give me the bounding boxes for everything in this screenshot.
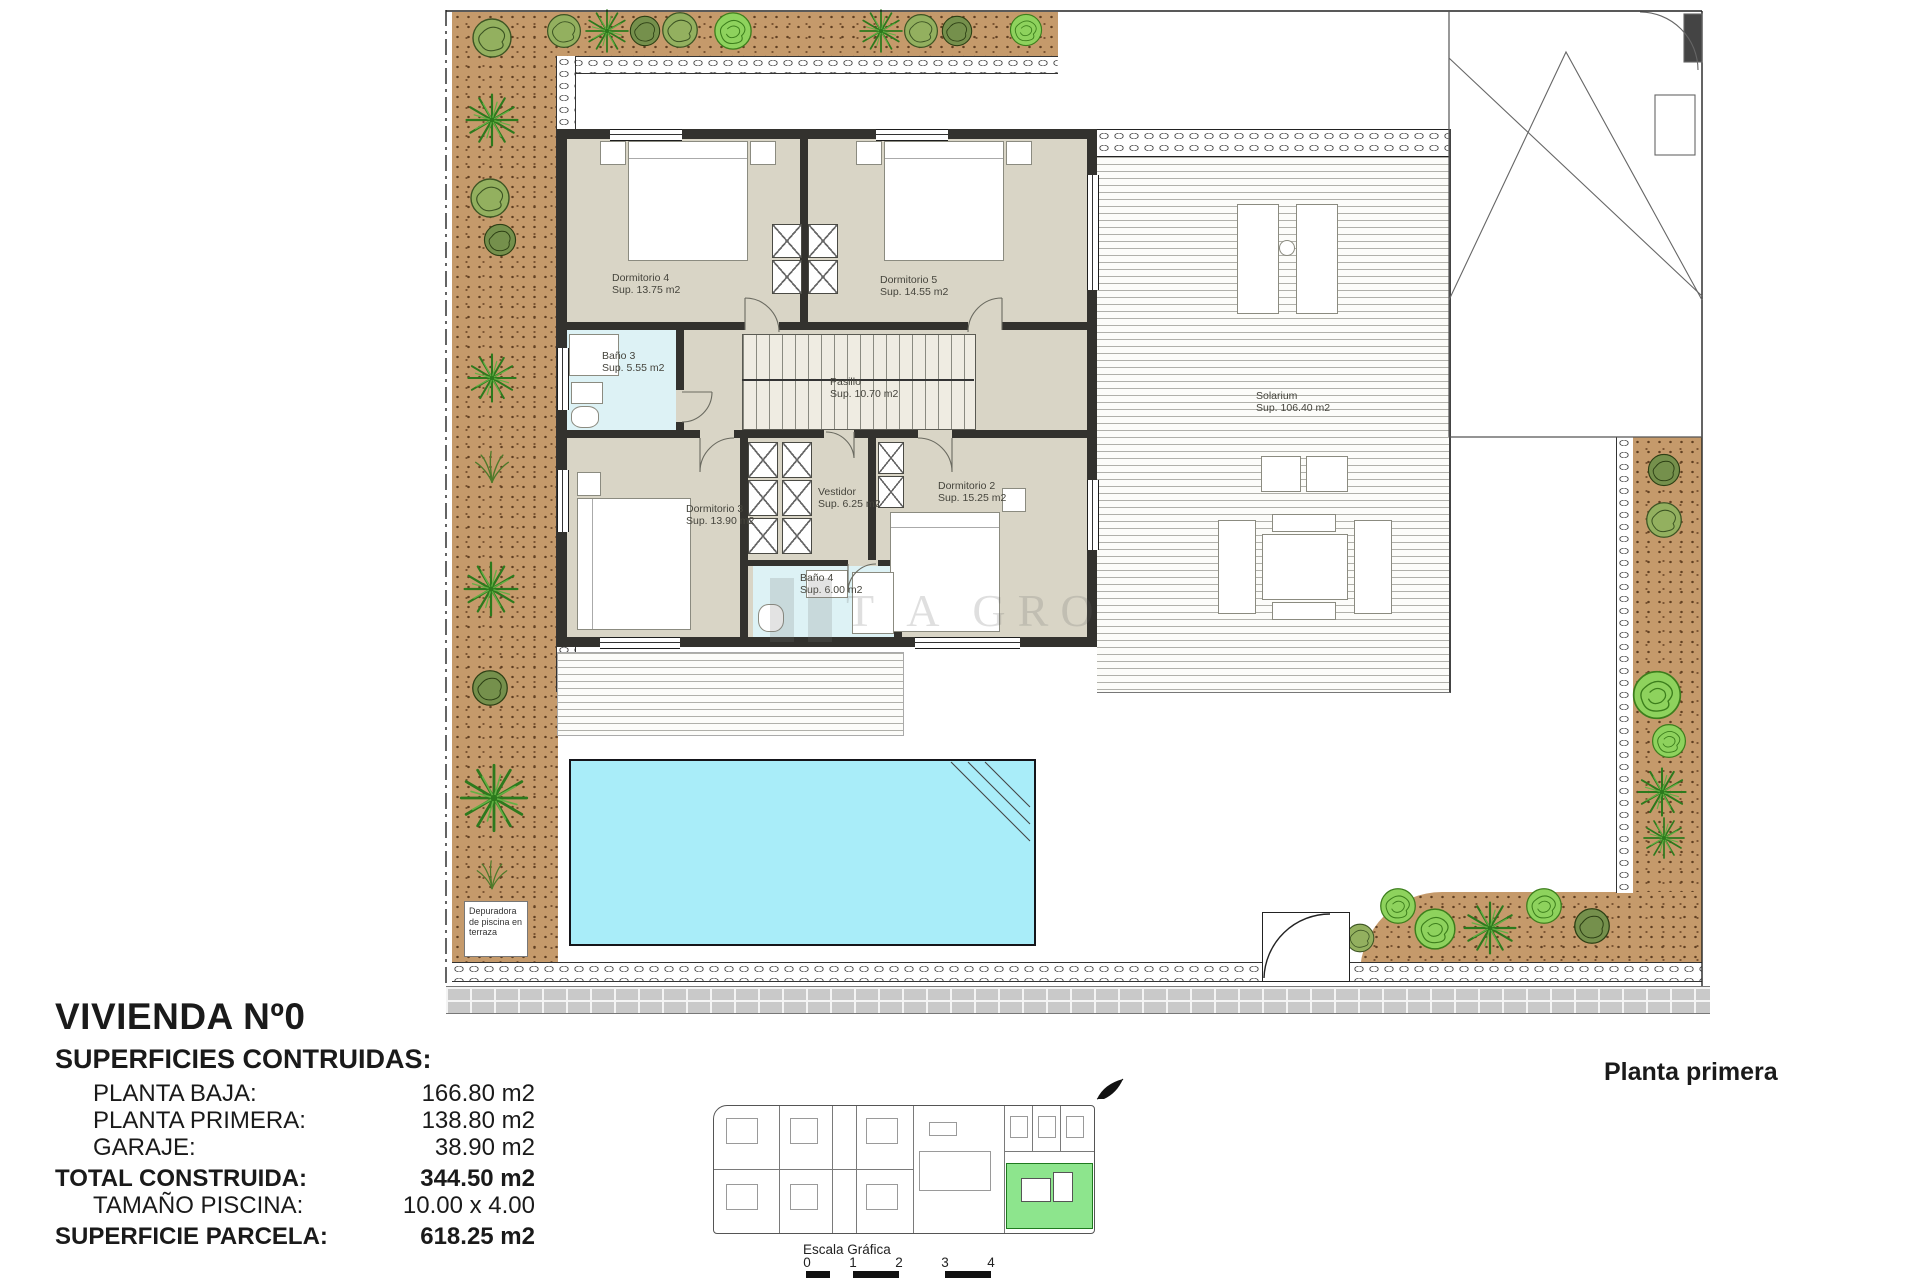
room-label-dormitorio-4: Dormitorio 4 Sup. 13.75 m2 (612, 272, 680, 296)
row-label: GARAJE: (55, 1134, 365, 1162)
room-area: Sup. 6.25 m2 (818, 498, 880, 510)
mini-unit-detail (1066, 1116, 1084, 1138)
scale-tick: 3 (939, 1255, 951, 1270)
bed (884, 141, 1004, 261)
window (610, 129, 682, 141)
wardrobe-icon (772, 224, 802, 258)
watermark: T A GRO (770, 578, 1106, 642)
mini-unit-detail (790, 1118, 818, 1144)
room-label-solarium: Solarium Sup. 106.40 m2 (1256, 390, 1330, 414)
wardrobe-icon (878, 442, 904, 474)
nightstand (750, 141, 776, 165)
garden-strip-right (1632, 437, 1702, 907)
surfaces-row: PLANTA BAJA: 166.80 m2 (55, 1080, 535, 1107)
scale-segment (853, 1271, 899, 1278)
surfaces-row: GARAJE: 38.90 m2 (55, 1134, 535, 1161)
note-line: de piscina (469, 917, 510, 927)
mini-unit-detail (790, 1184, 818, 1210)
mini-unit-detail (1021, 1178, 1051, 1202)
wall (557, 322, 1097, 330)
window (876, 129, 948, 141)
room-area: Sup. 10.70 m2 (830, 388, 898, 400)
sidewalk-band (446, 986, 1710, 1014)
scale-tick: 1 (847, 1255, 859, 1270)
window (600, 637, 680, 649)
nightstand (1006, 141, 1032, 165)
pool-equipment-note: Depuradora de piscina en terraza (464, 901, 528, 957)
room-name: Dormitorio 5 (880, 274, 948, 286)
sofa-module (1354, 520, 1392, 614)
row-value: 618.25 m2 (365, 1223, 535, 1251)
room-label-dormitorio-3: Dormitorio 3 Sup. 13.90 m2 (686, 503, 754, 527)
sliding-door (1087, 175, 1099, 290)
low-table (1261, 456, 1301, 492)
unit-divider (913, 1106, 914, 1233)
mini-unit-detail (1038, 1116, 1056, 1138)
scale-bar: Escala Gráfica 0 1 2 3 4 (803, 1242, 1043, 1280)
scale-tick: 0 (801, 1255, 813, 1270)
watermark-logo-bar (770, 578, 794, 642)
wall (740, 438, 748, 637)
sun-lounger (1296, 204, 1338, 314)
room-area: Sup. 5.55 m2 (602, 362, 664, 374)
surfaces-row: TAMAÑO PISCINA: 10.00 x 4.00 (55, 1192, 535, 1219)
floor-plan-sheet: Depuradora de piscina en terraza Dormito… (0, 0, 1920, 1280)
mini-unit-detail (919, 1151, 991, 1191)
room-area: Sup. 13.90 m2 (686, 515, 754, 527)
nightstand (600, 141, 626, 165)
door-opening (700, 430, 734, 438)
window (557, 470, 569, 532)
row-label: PLANTA BAJA: (55, 1080, 365, 1108)
watermark-text: T A GRO (846, 584, 1106, 637)
door-opening (918, 430, 952, 438)
room-name: Pasillo (830, 376, 898, 388)
scale-tick: 2 (893, 1255, 905, 1270)
sun-lounger (1237, 204, 1279, 314)
wardrobe-icon (772, 260, 802, 294)
row-label: PLANTA PRIMERA: (55, 1107, 365, 1135)
scale-segment (945, 1271, 991, 1278)
row-value: 138.80 m2 (365, 1107, 535, 1135)
room-label-dormitorio-2: Dormitorio 2 Sup. 15.25 m2 (938, 480, 1006, 504)
pool-shower-structure (1262, 912, 1350, 982)
watermark-logo-bar (808, 578, 832, 642)
room-label-pasillo: Pasillo Sup. 10.70 m2 (830, 376, 898, 400)
nightstand (856, 141, 882, 165)
stone-edging-top (556, 56, 1058, 74)
mini-unit-detail (866, 1118, 898, 1144)
sofa-cushion (1272, 514, 1336, 532)
mini-unit-detail (1010, 1116, 1028, 1138)
unit-divider (1032, 1106, 1033, 1151)
unit-divider (1004, 1106, 1005, 1233)
mini-unit-detail (866, 1184, 898, 1210)
bed (628, 141, 748, 261)
surfaces-table: PLANTA BAJA: 166.80 m2 PLANTA PRIMERA: 1… (55, 1080, 535, 1250)
row-value: 344.50 m2 (365, 1165, 535, 1193)
surfaces-heading: SUPERFICIES CONTRUIDAS: (55, 1044, 432, 1075)
highlighted-unit (1006, 1163, 1093, 1229)
door-opening (848, 560, 878, 566)
unit-divider (1060, 1106, 1061, 1151)
room-area: Sup. 106.40 m2 (1256, 402, 1330, 414)
mini-unit-detail (726, 1118, 758, 1144)
swimming-pool (569, 759, 1036, 946)
row-value: 10.00 x 4.00 (365, 1192, 535, 1220)
wardrobe-icon (782, 442, 812, 478)
wardrobe-icon (782, 518, 812, 554)
door-opening (676, 390, 684, 422)
plan-level-label: Planta primera (1604, 1058, 1778, 1087)
garden-strip-top (452, 12, 1058, 56)
surfaces-row-total: TOTAL CONSTRUIDA: 344.50 m2 (55, 1165, 535, 1192)
sink (571, 382, 603, 404)
mini-unit-detail (726, 1184, 758, 1210)
door-opening (745, 322, 779, 330)
mini-site-plan (713, 1105, 1095, 1234)
room-label-vestidor: Vestidor Sup. 6.25 m2 (818, 486, 880, 510)
stone-edging-bottom (452, 962, 1702, 982)
room-name: Solarium (1256, 390, 1330, 402)
garden-strip-left (452, 12, 558, 970)
toilet (571, 406, 599, 428)
room-label-dormitorio-5: Dormitorio 5 Sup. 14.55 m2 (880, 274, 948, 298)
terrace-deck (557, 652, 904, 736)
mini-unit-detail (1053, 1172, 1073, 1202)
room-name: Dormitorio 4 (612, 272, 680, 284)
stone-edging-right (1616, 437, 1633, 893)
wardrobe-icon (878, 476, 904, 508)
row-label: TOTAL CONSTRUIDA: (55, 1165, 365, 1193)
door-opening (968, 322, 1002, 330)
row-value: 38.90 m2 (365, 1134, 535, 1162)
note-line: Depuradora (469, 906, 517, 916)
room-area: Sup. 13.75 m2 (612, 284, 680, 296)
scale-segment (806, 1271, 830, 1278)
stone-band-solarium-top (1097, 129, 1449, 157)
door-opening (824, 430, 854, 438)
wardrobe-icon (748, 442, 778, 478)
row-divider (714, 1169, 913, 1170)
row-label: SUPERFICIE PARCELA: (55, 1223, 365, 1251)
row-divider (1004, 1151, 1094, 1152)
wardrobe-icon (782, 480, 812, 516)
mini-unit-detail (929, 1122, 957, 1136)
low-table (1306, 456, 1348, 492)
page-title: VIVIENDA Nº0 (55, 996, 305, 1038)
sofa-cushion (1272, 602, 1336, 620)
wardrobe-icon (808, 224, 838, 258)
side-table (1279, 240, 1295, 256)
sofa-module (1218, 520, 1256, 614)
row-label: TAMAÑO PISCINA: (55, 1192, 365, 1220)
surfaces-row: PLANTA PRIMERA: 138.80 m2 (55, 1107, 535, 1134)
window (1087, 480, 1099, 550)
dining-table (1262, 534, 1348, 600)
room-name: Baño 3 (602, 350, 664, 362)
room-label-bano-3: Baño 3 Sup. 5.55 m2 (602, 350, 664, 374)
neighbor-roof-lines (1449, 12, 1702, 300)
scale-tick: 4 (985, 1255, 997, 1270)
wall (745, 560, 902, 566)
room-area: Sup. 15.25 m2 (938, 492, 1006, 504)
bed (577, 498, 691, 630)
room-name: Dormitorio 2 (938, 480, 1006, 492)
room-area: Sup. 14.55 m2 (880, 286, 948, 298)
room-name: Vestidor (818, 486, 880, 498)
window (557, 348, 569, 410)
surfaces-row-parcel: SUPERFICIE PARCELA: 618.25 m2 (55, 1223, 535, 1250)
nightstand (577, 472, 601, 496)
row-value: 166.80 m2 (365, 1080, 535, 1108)
room-name: Dormitorio 3 (686, 503, 754, 515)
north-arrow-icon (1094, 1076, 1128, 1106)
wardrobe-icon (808, 260, 838, 294)
